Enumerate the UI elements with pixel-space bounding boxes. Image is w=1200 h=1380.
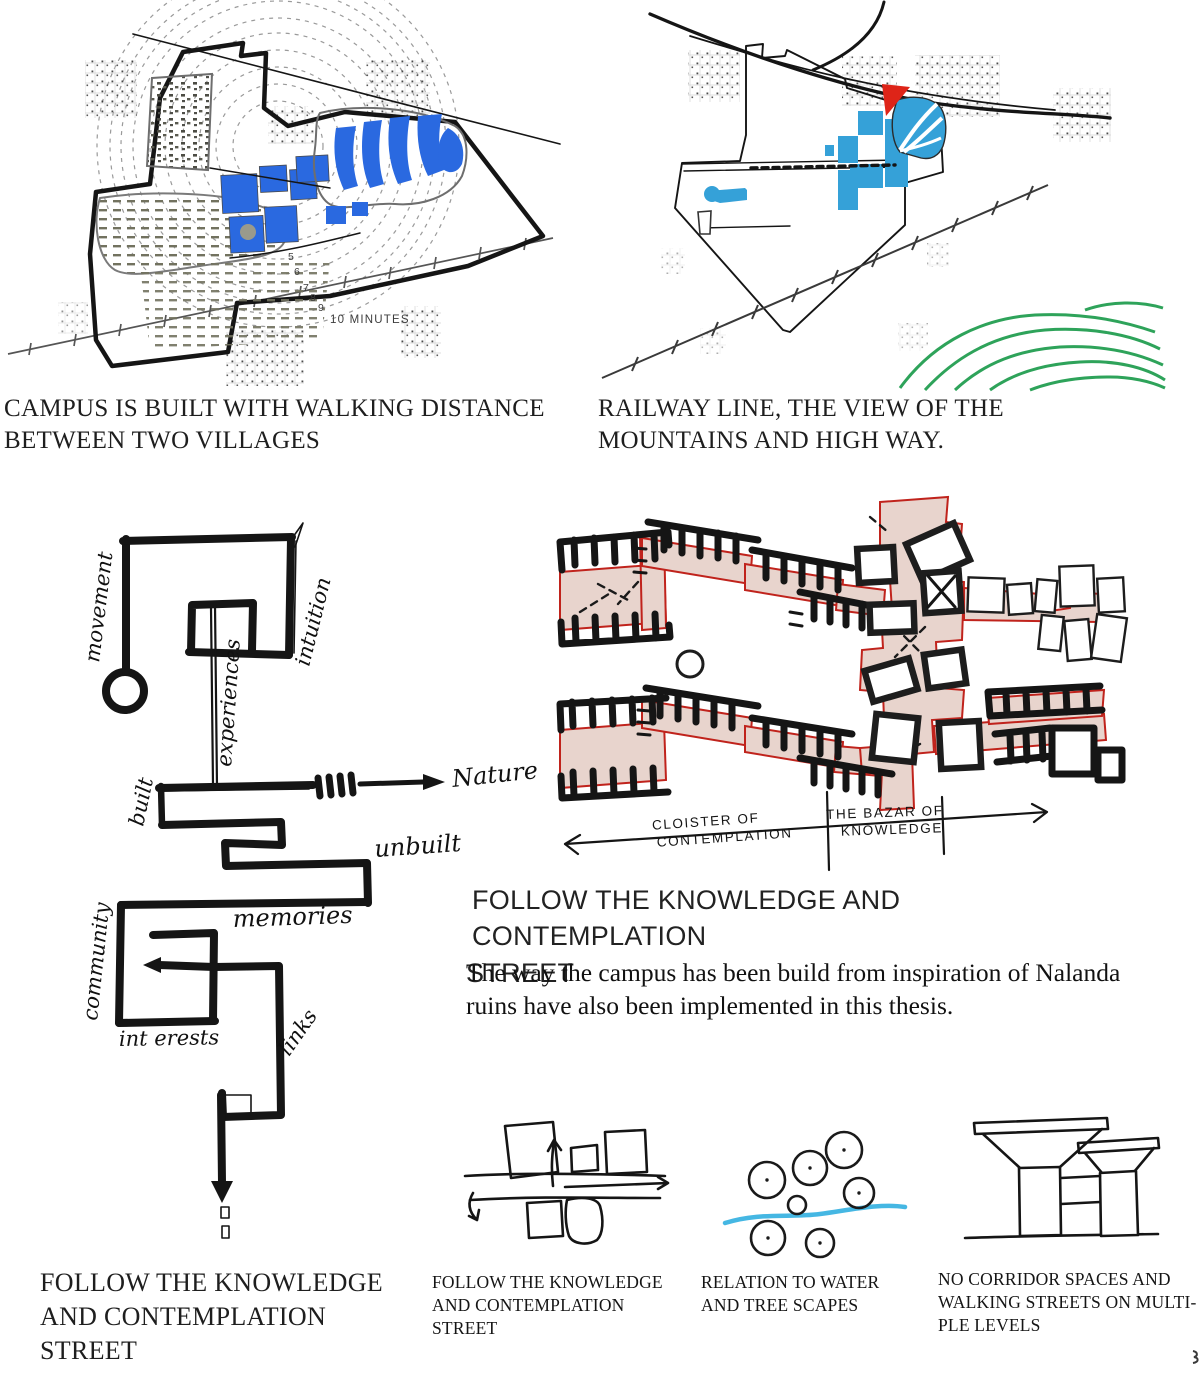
svg-text:9: 9 — [318, 302, 324, 314]
label-built: built — [124, 775, 158, 828]
nature-arrowhead — [423, 774, 445, 790]
caption-line: RELATION TO WATER — [701, 1271, 936, 1294]
label-memories: memories — [232, 901, 353, 933]
nature-arrow — [360, 782, 423, 784]
plantation-rows-south — [140, 258, 330, 350]
label-unbuilt: unbuilt — [373, 829, 462, 863]
map-context-railway — [595, 0, 1200, 392]
svg-text:5: 5 — [288, 251, 294, 263]
caption-line: BETWEEN TWO VILLAGES — [4, 425, 589, 457]
village-block-north — [147, 74, 212, 170]
body-line: ruins have also been implemented in this… — [466, 989, 1166, 1022]
label-interests: int erests — [119, 1025, 220, 1051]
label-intuition: intuition — [291, 575, 336, 668]
map-campus-walking-distance: 5 6 7 8 9 10 MINUTES — [0, 8, 570, 393]
caption-street-small: FOLLOW THE KNOWLEDGE AND CONTEMPLATION S… — [432, 1271, 687, 1339]
svg-text:7: 7 — [303, 282, 309, 294]
caption-line: WALKING STREETS ON MULTI- — [938, 1291, 1200, 1314]
round-pavilion — [677, 651, 703, 677]
caption-line: STREET — [432, 1317, 687, 1340]
caption-railway-view: RAILWAY LINE, THE VIEW OF THE MOUNTAINS … — [598, 393, 1078, 457]
round-feature — [240, 224, 256, 240]
heading-line: FOLLOW THE KNOWLEDGE AND CONTEMPLATION — [472, 882, 1132, 955]
water-line — [725, 1206, 905, 1223]
label-movement: movement — [80, 550, 117, 664]
label-community: community — [78, 900, 114, 1021]
svg-text:8: 8 — [310, 292, 316, 304]
caption-line: AND CONTEMPLATION — [432, 1294, 687, 1317]
water-tank — [698, 211, 711, 234]
campus-plan-sketch: CLOISTER OF CONTEMPLATION THE BAZAR OF K… — [540, 492, 1130, 877]
down-arrowhead — [211, 1181, 233, 1203]
caption-line: PLE LEVELS — [938, 1314, 1200, 1337]
sketch-street-buildings — [425, 1088, 695, 1263]
page-corner-mark — [1191, 1349, 1200, 1365]
caption-line: NO CORRIDOR SPACES AND — [938, 1268, 1200, 1291]
label-experiences: experiences — [212, 638, 245, 767]
sketch-towers-no-corridor — [930, 1088, 1190, 1260]
left-arrowhead — [143, 957, 161, 973]
label-bazar-2: KNOWLEDGE — [841, 820, 944, 839]
ten-minutes-label: 10 MINUTES — [330, 314, 410, 326]
caption-line: FOLLOW THE KNOWLEDGE — [40, 1266, 400, 1300]
axis-annotation: CLOISTER OF CONTEMPLATION THE BAZAR OF K… — [565, 792, 1047, 870]
caption-line: STREET — [40, 1334, 400, 1368]
caption-no-corridor: NO CORRIDOR SPACES AND WALKING STREETS O… — [938, 1268, 1200, 1336]
gate-hash-marks — [318, 775, 353, 796]
svg-text:6: 6 — [294, 266, 300, 278]
caption-line: AND TREE SCAPES — [701, 1294, 936, 1317]
caption-campus-walking: CAMPUS IS BUILT WITH WALKING DISTANCE BE… — [4, 393, 589, 457]
contour-lines — [900, 303, 1165, 390]
water-bodies — [704, 97, 946, 210]
thesis-board-page: 5 6 7 8 9 10 MINUTES — [0, 0, 1200, 1380]
caption-line: CAMPUS IS BUILT WITH WALKING DISTANCE — [4, 393, 589, 425]
caption-water-trees: RELATION TO WATER AND TREE SCAPES — [701, 1271, 936, 1317]
street-path — [106, 537, 368, 1183]
street-concept-sketch: movement intuition experiences built Nat… — [55, 495, 485, 1265]
caption-street-big: FOLLOW THE KNOWLEDGE AND CONTEMPLATION S… — [40, 1266, 400, 1367]
water-bodies-centre — [220, 155, 333, 254]
caption-line: RAILWAY LINE, THE VIEW OF THE — [598, 393, 1078, 425]
caption-line: MOUNTAINS AND HIGH WAY. — [598, 425, 1078, 457]
sketch-trees-water — [700, 1090, 910, 1265]
caption-line: FOLLOW THE KNOWLEDGE — [432, 1271, 687, 1294]
body-line: The way the campus has been build from i… — [466, 956, 1166, 989]
caption-line: AND CONTEMPLATION — [40, 1300, 400, 1334]
label-nature: Nature — [450, 756, 540, 793]
plan-body-text: The way the campus has been build from i… — [466, 956, 1166, 1022]
